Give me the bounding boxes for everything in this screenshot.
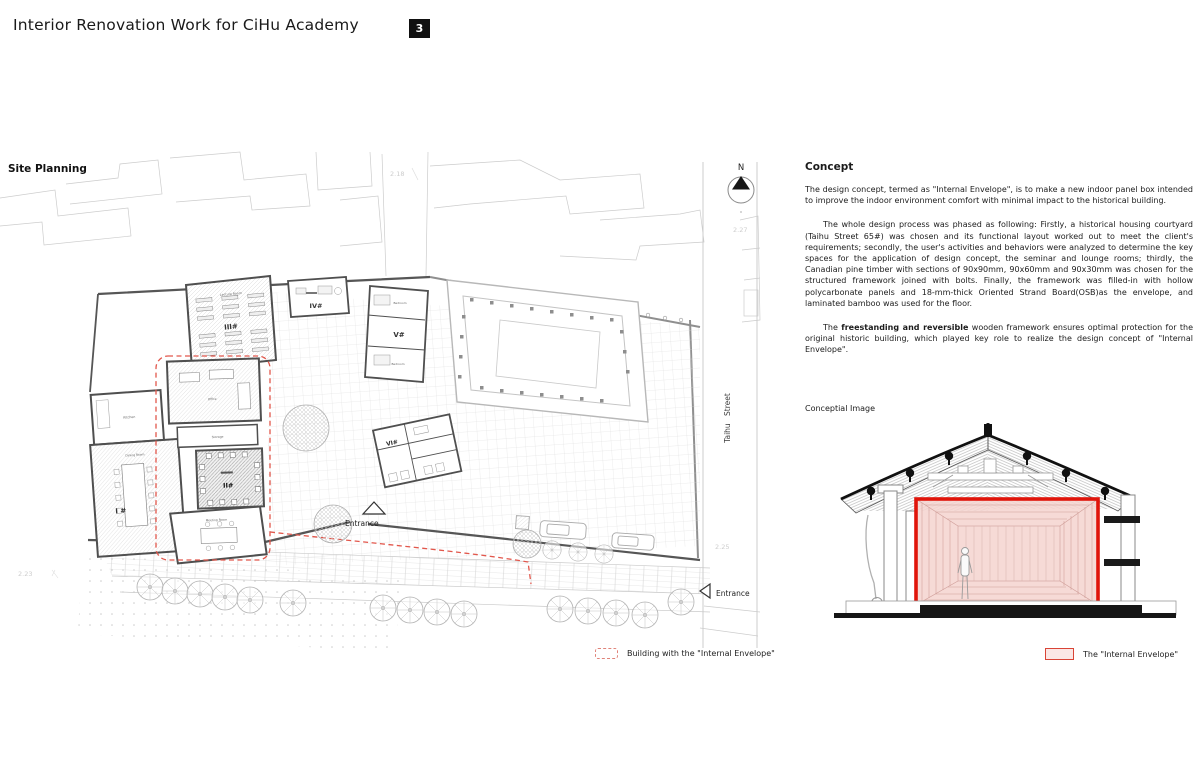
bedroom-lower-label: Bedroom [391, 362, 404, 366]
conceptual-section-drawing [808, 423, 1196, 631]
meeting-room-label: Meeting Room [206, 518, 228, 523]
page-title: Interior Renovation Work for CiHu Academ… [13, 16, 359, 34]
concept-paragraph-1: The design concept, termed as "Internal … [805, 184, 1193, 206]
entrance-marker-2: Entrance [700, 584, 750, 598]
room-4-label: IV# [310, 302, 323, 310]
street-label: Taihu Street [723, 393, 732, 444]
room-5-label: V# [393, 331, 404, 339]
entrance-label-2: Entrance [716, 589, 750, 598]
bedroom-upper-label: Bedroom [393, 301, 406, 305]
p3-pre: The [823, 323, 841, 332]
concept-legend-label: The "Internal Envelope" [1083, 650, 1178, 659]
plan-legend-label: Building with the "Internal Envelope" [627, 649, 775, 658]
east-courtyard-house [447, 280, 648, 422]
page-number-badge: 3 [409, 19, 430, 38]
room-5-wing: Bedroom Bedroom V# [365, 286, 428, 382]
concept-legend: The "Internal Envelope" [1045, 648, 1178, 660]
plan-legend: Building with the "Internal Envelope" [595, 648, 775, 659]
storage-label: Storage [212, 435, 224, 439]
concept-section: Concept The design concept, termed as "I… [805, 161, 1193, 369]
elevation-top: 2.18 [390, 170, 404, 178]
dashed-red-swatch [595, 648, 618, 659]
north-label: N [738, 163, 744, 173]
kitchen-label: Kitchen [123, 415, 135, 420]
room-3-label: III# [224, 322, 238, 331]
conceptual-image-label: Conceptial Image [805, 404, 875, 413]
internal-envelope [916, 499, 1098, 605]
p3-bold: freestanding and reversible [841, 323, 968, 332]
north-arrow-icon: N [728, 163, 754, 213]
elevation-right-lower: 2.25 [715, 543, 729, 551]
ground-base [834, 601, 1176, 618]
lecture-room: Lecture Room III# [186, 276, 276, 369]
room-4: IV# [288, 277, 349, 317]
elevation-right-upper: 2.27 [733, 226, 747, 234]
concept-paragraph-2: The whole design process was phased as f… [805, 219, 1193, 309]
room-2-label: II# [223, 481, 234, 489]
elevation-left-lower: 2.23 [18, 570, 32, 578]
room-1-label: I # [115, 507, 127, 516]
office-label: Office [208, 397, 217, 401]
concept-heading: Concept [805, 161, 1193, 173]
entrance-label-1: Entrance [345, 519, 379, 528]
concept-paragraph-3: The freestanding and reversible wooden f… [805, 322, 1193, 356]
site-plan-drawing: Lecture Room III# IV# Bedroom Bedroom V#… [0, 150, 765, 664]
solid-red-swatch [1045, 648, 1074, 660]
